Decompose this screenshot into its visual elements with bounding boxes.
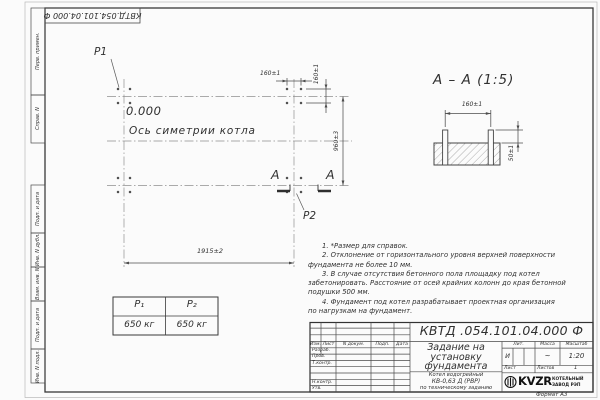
- format-label: Формат А3: [536, 393, 567, 399]
- elevation-mark: 0.000: [126, 106, 161, 118]
- note-line: 3. В случае отсутствия бетонного пола пл…: [308, 270, 570, 279]
- sheet-outer-border: [25, 2, 597, 398]
- kvzr-logo-text: KVZR: [518, 376, 552, 388]
- props-col-massa: Масса: [535, 343, 560, 348]
- margin-label-inv-podl: Инв. N подл.: [31, 349, 45, 383]
- section-dim-160: 160±1: [452, 102, 492, 108]
- margin-label-podp-data-2: Подп. и дата: [31, 301, 45, 349]
- rev-col-dokum: N докум.: [336, 343, 371, 348]
- section-letter-right: А: [326, 169, 335, 182]
- product-name-line2: КВ-0,63 Д (РВР): [410, 379, 502, 385]
- sheets-count: 1: [574, 366, 577, 371]
- dim-1915: 1915±2: [192, 248, 228, 255]
- kvzr-logo-emblem-icon: [504, 375, 517, 389]
- note-line: подушки 500 мм.: [308, 288, 570, 297]
- doc-title-line3: фундамента: [410, 362, 502, 372]
- sheet-label: Лист: [504, 367, 516, 372]
- drawing-geometry: [0, 0, 600, 400]
- note-line: 2. Отклонение от горизонтального уровня …: [308, 251, 570, 260]
- kvzr-logo-sub1: КОТЕЛЬНЫЙ: [552, 378, 584, 382]
- rev-col-izm: Изм.: [310, 343, 321, 348]
- note-line: забетонировать. Расстояние от осей крайн…: [308, 279, 570, 288]
- sign-row-utv: Утв.: [312, 387, 322, 392]
- rev-col-list: Лист: [321, 343, 336, 348]
- load-table-header-p2: Р₂: [166, 300, 219, 310]
- section-dim-50: 50±1: [509, 140, 517, 166]
- lit-value: И: [502, 353, 513, 360]
- rev-col-data: Дата: [394, 343, 410, 348]
- section-view-title: А – А (1:5): [433, 74, 514, 88]
- boiler-symmetry-axis-label: Ось симетрии котла: [129, 126, 256, 137]
- scale-value: 1:20: [560, 353, 593, 360]
- product-name-line3: по техническому заданию: [410, 386, 502, 391]
- dim-160-horizontal: 160±1: [260, 71, 280, 77]
- margin-label-perv-primen: Перв. примен.: [31, 8, 45, 95]
- mass-value: ~: [535, 353, 560, 360]
- section-view-shapes: [434, 130, 500, 165]
- sign-row-prov: Пров.: [312, 355, 325, 360]
- technical-notes: 1. *Размер для справок. 2. Отклонение от…: [308, 242, 570, 316]
- kvzr-logo-sub2: ЗАВОД РЭП: [552, 384, 581, 388]
- sign-row-razrab: Разраб.: [312, 349, 330, 354]
- props-col-lit: Лит.: [502, 343, 535, 348]
- load-point-p1-label: P1: [94, 47, 107, 58]
- title-block-designation: КВТД .054.101.04.000 Ф: [410, 325, 593, 338]
- rotated-designation-stamp: КВТД.054.101.04.000 Ф: [45, 8, 140, 23]
- props-col-masshtab: Масштаб: [560, 343, 593, 348]
- dim-960: 960±3: [334, 128, 342, 154]
- margin-label-podp-data-1: Подп. и дата: [31, 185, 45, 233]
- load-table-value-p2: 650 кг: [166, 321, 219, 330]
- sign-row-nkontr: Н.контр.: [312, 381, 333, 386]
- margin-label-inv-dubl: Инв. N дубл.: [31, 233, 45, 267]
- drawing-sheet: { "sheet": { "stamp_rotated": "КВТД.054.…: [0, 0, 600, 400]
- note-line: по нагрузкам на фундамент.: [308, 307, 570, 316]
- load-table-header-p1: Р₁: [113, 300, 166, 310]
- rev-col-podp: Подп.: [371, 343, 394, 348]
- sheets-label: Листов: [537, 367, 554, 372]
- section-letter-left: А: [271, 169, 280, 182]
- load-table-value-p1: 650 кг: [113, 321, 166, 330]
- note-line: фундамента не более 10 мм.: [308, 261, 570, 270]
- load-point-p2-label: P2: [303, 211, 316, 222]
- note-line: 4. Фундамент под котел разрабатывает про…: [308, 298, 570, 307]
- margin-label-sprav-n: Справ. N: [31, 95, 45, 143]
- note-line: 1. *Размер для справок.: [308, 242, 570, 251]
- dim-160-vertical: 160±1: [314, 61, 322, 87]
- sign-row-tkontr: Т.контр.: [312, 362, 332, 367]
- margin-label-vzam-inv: Взам. инв. N: [31, 267, 45, 301]
